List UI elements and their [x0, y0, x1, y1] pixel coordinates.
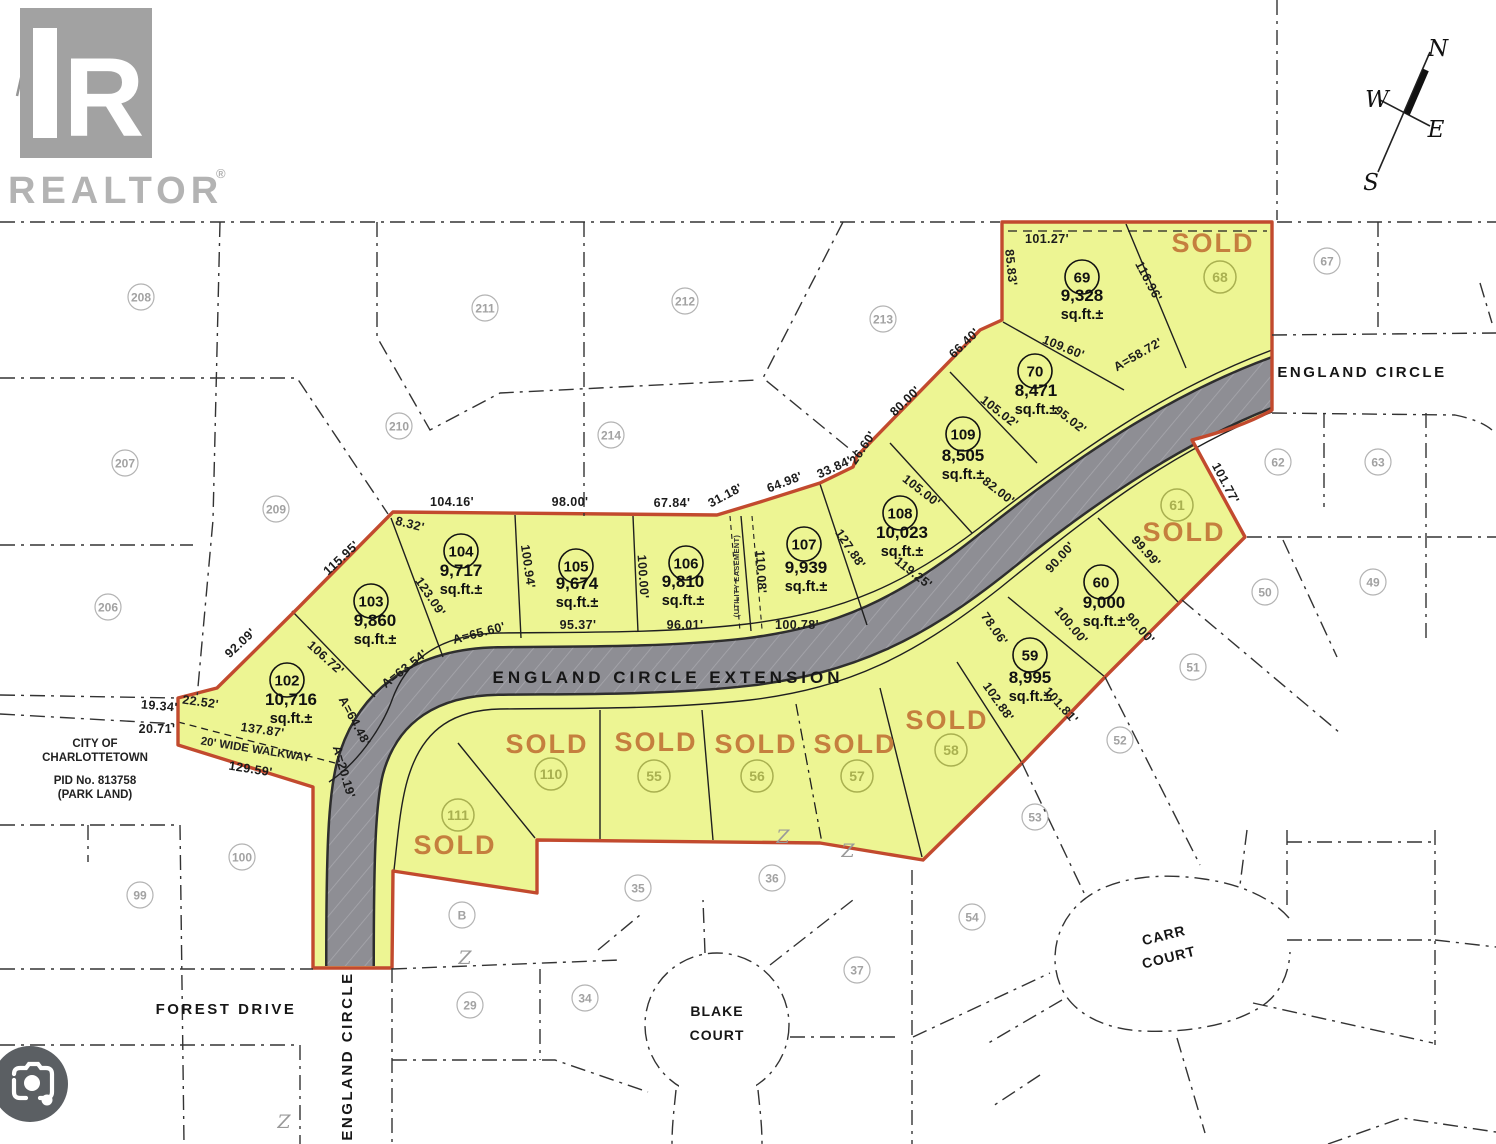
park-note-line: (PARK LAND) — [58, 789, 133, 801]
adjacent-lot-34-number: 34 — [578, 992, 592, 1006]
adjacent-lot-99-number: 99 — [133, 889, 147, 903]
realtor-logo: R — [17, 8, 152, 160]
adjacent-lot-207-number: 207 — [115, 457, 135, 471]
blake-court-culdesac — [645, 953, 789, 1097]
utility-easement-label: (UTILITY EASEMENT) — [732, 535, 741, 618]
adjacent-lot-63-number: 63 — [1371, 456, 1385, 470]
carr-court-line1-label: CARR — [1140, 922, 1187, 948]
dimension-label: 96.01' — [667, 618, 704, 632]
dimension-label: 110.08' — [753, 550, 769, 594]
realtor-logo-letter: R — [64, 35, 145, 160]
england-circle-east-label: ENGLAND CIRCLE — [1277, 364, 1446, 381]
adjacent-lot-50-number: 50 — [1258, 586, 1272, 600]
sold-lot-68-sold-badge: SOLD — [1171, 228, 1254, 258]
adjacent-lot-49-number: 49 — [1366, 576, 1380, 590]
adjacent-lot-52-number: 52 — [1113, 734, 1127, 748]
lot-106-number: 106 — [673, 556, 698, 573]
dimension-label: 31.18' — [706, 481, 745, 511]
dimension-label: 104.16' — [430, 495, 474, 509]
adjacent-lot-51-number: 51 — [1186, 661, 1200, 675]
dimension-label: 95.37' — [560, 618, 597, 632]
sold-lot-61-sold-badge: SOLD — [1142, 517, 1225, 547]
z-survey-mark: Z — [276, 1111, 291, 1133]
adjacent-lot-210-number: 210 — [389, 420, 409, 434]
adjacent-lot-213-number: 213 — [873, 313, 893, 327]
lot-69-number: 69 — [1074, 270, 1091, 287]
lot-104-number: 104 — [448, 544, 474, 561]
lot-59-area: 8,995 — [1009, 668, 1052, 687]
plat-map: R REALTOR ® 2082112122136721021420720920… — [0, 0, 1496, 1144]
plat-map-page: R REALTOR ® 2082112122136721021420720920… — [0, 0, 1496, 1144]
compass-west-label: W — [1365, 87, 1391, 113]
compass-south-label: S — [1363, 170, 1379, 196]
dimension-label: 100.78' — [775, 618, 819, 632]
park-note-line: CITY OF — [72, 738, 117, 750]
adjacent-lot-62-number: 62 — [1271, 456, 1285, 470]
adjacent-lot-29-number: 29 — [463, 999, 477, 1013]
sold-lot-57-number: 57 — [849, 768, 865, 784]
blake-court-neck-mask — [679, 1080, 756, 1104]
lot-60-area: 9,000 — [1083, 593, 1126, 612]
realtor-wordmark: REALTOR — [8, 170, 223, 212]
z-survey-mark: Z — [840, 840, 855, 862]
lot-105-number: 105 — [563, 559, 588, 576]
sold-lot-111-number: 111 — [447, 807, 469, 823]
dimension-label: 20.71' — [139, 722, 176, 736]
adjacent-lot-206-number: 206 — [98, 601, 118, 615]
park-note-line: CHARLOTTETOWN — [42, 752, 148, 764]
lot-104-area: 9,717 — [440, 561, 483, 580]
adjacent-lot-214-number: 214 — [601, 429, 621, 443]
england-circle-south-label: ENGLAND CIRCLE — [339, 971, 356, 1140]
adjacent-lot-B-number: B — [458, 909, 467, 923]
adjacent-lot-211-number: 211 — [475, 302, 495, 316]
camera-lens-icon[interactable] — [0, 1046, 68, 1122]
lot-103-area-units: sq.ft.± — [354, 632, 397, 648]
lot-109-area: 8,505 — [942, 446, 985, 465]
lot-107-area-units: sq.ft.± — [785, 579, 828, 595]
registered-mark-icon: ® — [216, 166, 226, 181]
lot-103-area: 9,860 — [354, 611, 397, 630]
lot-102-number: 102 — [274, 673, 299, 690]
compass-east-label: E — [1427, 117, 1445, 143]
adjacent-lot-208-number: 208 — [131, 291, 151, 305]
lot-103-number: 103 — [358, 594, 383, 611]
forest-drive-label: FOREST DRIVE — [156, 1001, 297, 1018]
lot-70-number: 70 — [1027, 364, 1044, 381]
dimension-label: 19.34' — [140, 697, 178, 714]
lot-105-area: 9,674 — [556, 574, 599, 593]
england-circle-extension-label: ENGLAND CIRCLE EXTENSION — [492, 668, 843, 687]
lot-108-number: 108 — [887, 506, 912, 523]
lot-60-number: 60 — [1093, 575, 1110, 592]
adjacent-lot-36-number: 36 — [765, 872, 779, 886]
sold-lot-61-number: 61 — [1169, 497, 1185, 513]
z-survey-mark: Z — [775, 826, 790, 848]
sold-lot-110-number: 110 — [540, 766, 563, 782]
dimension-label: 101.27' — [1025, 232, 1069, 246]
sold-lot-110-sold-badge: SOLD — [505, 729, 588, 759]
lot-69-area: 9,328 — [1061, 286, 1104, 305]
sold-lot-111-sold-badge: SOLD — [413, 830, 496, 860]
sold-lot-55-number: 55 — [646, 768, 662, 784]
dimension-label: 98.00' — [552, 495, 589, 509]
sold-lot-57-sold-badge: SOLD — [813, 729, 896, 759]
adjacent-lot-37-number: 37 — [850, 964, 864, 978]
lot-60-area-units: sq.ft.± — [1083, 614, 1126, 630]
adjacent-lot-53-number: 53 — [1028, 811, 1042, 825]
z-survey-mark: Z — [457, 947, 472, 969]
lot-69-area-units: sq.ft.± — [1061, 307, 1104, 323]
sold-lot-68-number: 68 — [1212, 269, 1228, 285]
lot-107-number: 107 — [791, 537, 816, 554]
lot-105-area-units: sq.ft.± — [556, 595, 599, 611]
adjacent-lot-67-number: 67 — [1320, 255, 1334, 269]
park-note-line: PID No. 813758 — [54, 775, 137, 787]
adjacent-lot-100-number: 100 — [232, 851, 252, 865]
blake-court-line1-label: BLAKE — [690, 1003, 743, 1019]
lot-109-area-units: sq.ft.± — [942, 467, 985, 483]
realtor-logo-bar — [33, 28, 57, 138]
blake-court-line2-label: COURT — [690, 1027, 745, 1043]
adjacent-lot-54-number: 54 — [965, 911, 979, 925]
adjacent-lot-209-number: 209 — [266, 503, 286, 517]
lot-109-number: 109 — [950, 427, 975, 444]
lot-106-area-units: sq.ft.± — [662, 593, 705, 609]
compass-north-label: N — [1427, 36, 1449, 62]
dimension-label: 67.84' — [654, 496, 691, 510]
sold-lot-55-sold-badge: SOLD — [614, 727, 697, 757]
lot-104-area-units: sq.ft.± — [440, 582, 483, 598]
sold-lot-56-sold-badge: SOLD — [714, 729, 797, 759]
lot-59-number: 59 — [1022, 648, 1039, 665]
lot-102-area: 10,716 — [265, 690, 317, 709]
lot-106-area: 9,810 — [662, 572, 705, 591]
lot-108-area: 10,023 — [876, 523, 928, 542]
sold-lot-58-number: 58 — [943, 742, 959, 758]
sold-lot-56-number: 56 — [749, 768, 765, 784]
adjacent-lot-35-number: 35 — [631, 882, 645, 896]
lot-70-area-units: sq.ft.± — [1015, 402, 1058, 418]
lot-107-area: 9,939 — [785, 558, 828, 577]
sold-lot-58-sold-badge: SOLD — [905, 705, 988, 735]
adjacent-lot-212-number: 212 — [675, 295, 695, 309]
lot-70-area: 8,471 — [1015, 381, 1058, 400]
